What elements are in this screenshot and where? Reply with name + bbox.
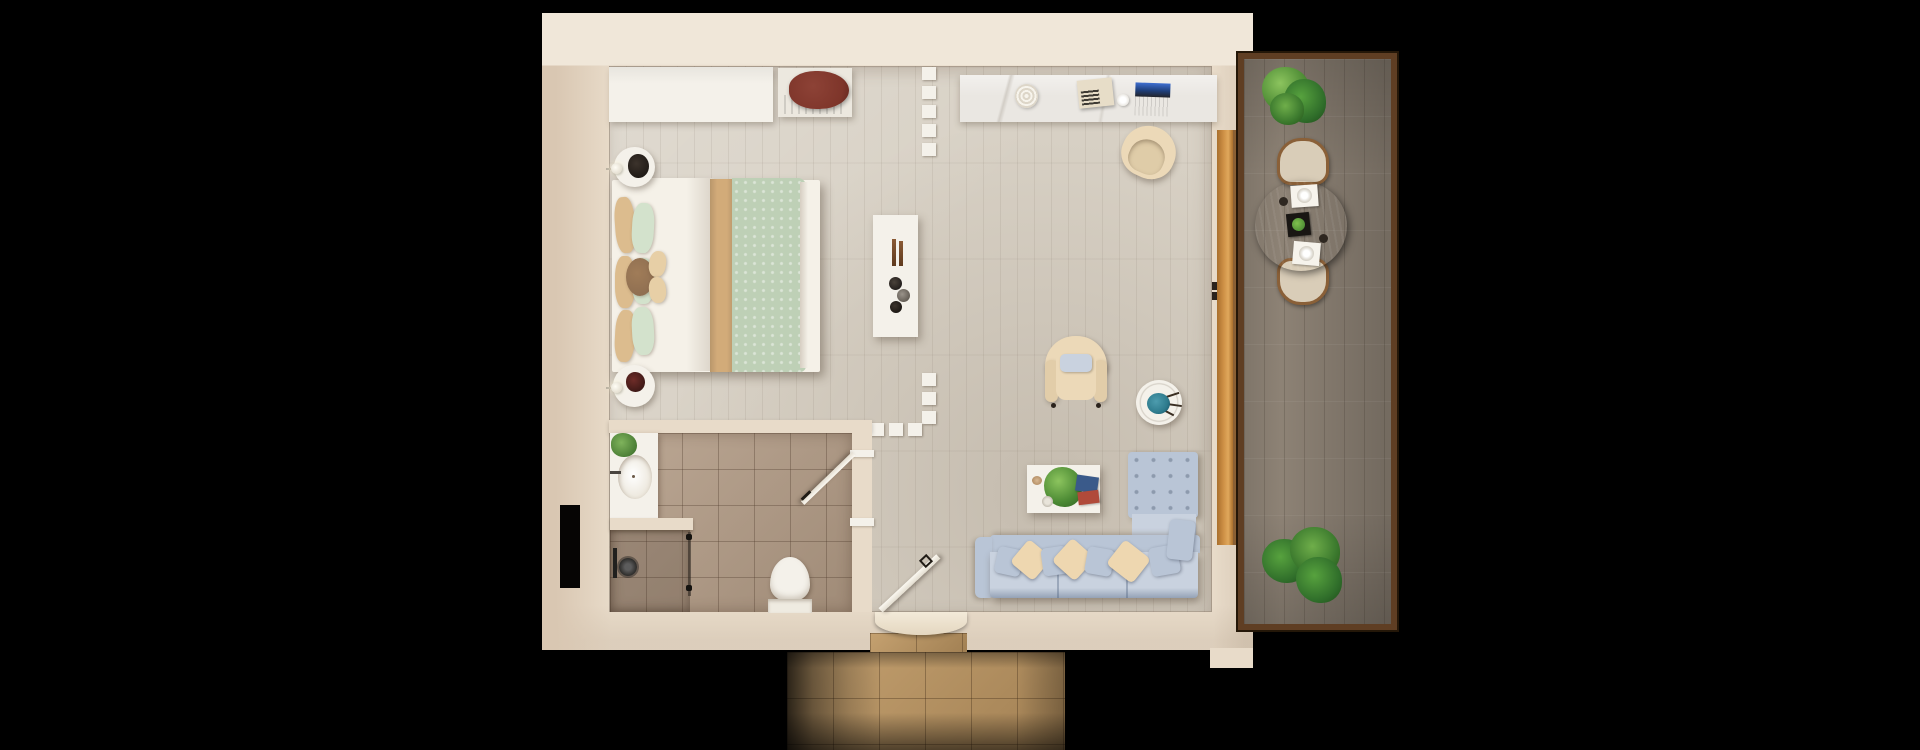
laptop [1134,82,1170,116]
dining-chair-north [1277,138,1329,185]
partition-dash [922,86,936,99]
window-handle [1212,292,1217,300]
partition-dash [908,423,922,436]
coffee-table [1027,465,1100,513]
shower-partition-wall [610,518,693,530]
radio-device [1077,77,1115,109]
wall-niche-black [560,505,580,588]
shower-control-bar [613,548,617,578]
toilet-bowl [770,557,810,601]
woven-basket [1015,84,1038,108]
teal-flower-arrangement [1147,393,1170,414]
glass-hinge [686,585,692,591]
sofa-chaise-back [1128,452,1198,518]
balcony-deck [1238,53,1397,630]
console-table [873,215,918,337]
bathroom-floor-tiles [610,433,852,612]
bed-fold [800,182,820,368]
armchair-foot [1051,403,1056,408]
nightstand-decor-bag [628,154,649,178]
partition-dash [922,67,936,80]
bathroom-plant [611,433,637,457]
stone-entry-path [787,652,1065,750]
partition-dash [922,411,936,424]
coffee-cup [1117,94,1129,106]
laptop-keyboard [1134,96,1170,116]
bed-blanket-green [732,178,806,372]
nightstand-flowers [626,372,645,392]
wall-lamp-bottom [611,382,622,393]
armchair-foot [1096,403,1101,408]
glass-hinge [686,534,692,540]
console-wood-sculpture [892,239,896,266]
glass-cup [1042,496,1053,507]
partition-dash [922,373,936,386]
book-red [1077,490,1099,505]
sofa-pillow-blue [1166,519,1196,561]
floor-plan-scene [0,0,1920,750]
table-cup [1319,234,1328,243]
balcony-plant-top [1270,93,1304,125]
console-cup [889,277,902,290]
path-shading [787,652,1065,750]
red-blanket [789,71,849,109]
bedroom-bathroom-wall [609,420,872,433]
sliding-glass-door-frame [1217,130,1233,545]
window-handle [1212,282,1217,290]
plate [1296,187,1312,203]
shell-decor [1032,476,1042,485]
toilet [768,557,812,613]
sink-faucet [610,471,621,474]
partition-dash [922,124,936,137]
entry-recess-tiles [870,633,967,652]
table-cup [1279,197,1288,206]
wardrobe [609,67,773,122]
partition-dash [889,423,903,436]
door-jamb [850,518,874,526]
bed-pillow [631,306,655,355]
balcony-plant-bottom [1296,557,1342,603]
toilet-tank [768,599,812,613]
place-setting-south [1292,241,1321,266]
place-setting-north [1290,184,1318,208]
sink-drain [632,475,635,478]
salad-bowl [1291,217,1305,231]
wall-lamp-top [611,163,622,174]
partition-dash [922,143,936,156]
wall-corner-extension [1210,648,1253,668]
dining-table [1255,181,1347,271]
plate [1298,245,1314,261]
partition-dash [870,423,884,436]
console-wood-sculpture [899,241,903,266]
partition-dash [922,105,936,118]
laptop-screen [1135,82,1170,97]
console-bowl [897,289,910,302]
device-grill [1081,89,1100,106]
armchair-pillow [1060,354,1092,372]
shower-head [619,558,637,576]
armchair [1045,336,1107,408]
partition-dash [922,392,936,405]
sink-basin [618,455,652,499]
console-cup [890,301,902,313]
black-tray [1286,212,1311,237]
bed-runner-tan [710,179,734,372]
